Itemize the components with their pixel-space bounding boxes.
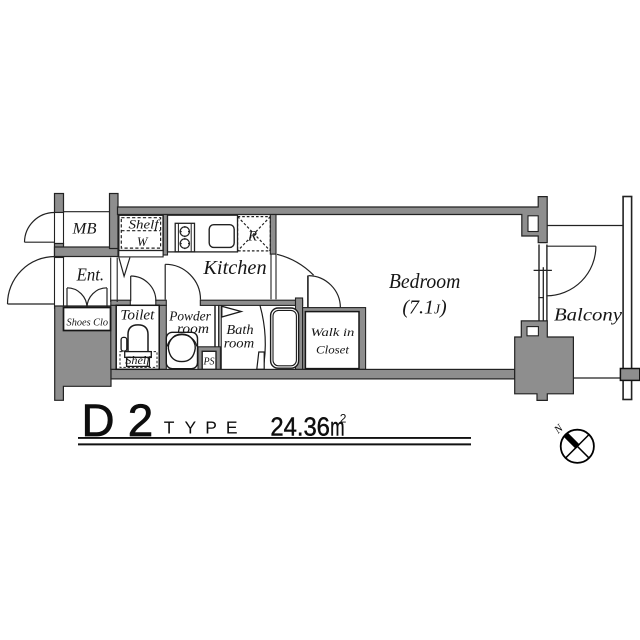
svg-text:R: R (247, 228, 257, 244)
svg-text:Kitchen: Kitchen (202, 257, 266, 279)
svg-text:room: room (224, 337, 254, 352)
svg-text:PS: PS (202, 356, 214, 367)
svg-text:(7.1J): (7.1J) (402, 297, 447, 319)
svg-text:Shoes Clo: Shoes Clo (67, 317, 109, 328)
svg-text:MB: MB (71, 221, 96, 238)
svg-text:Shelf: Shelf (129, 217, 161, 231)
svg-text:TYPE: TYPE (164, 417, 238, 437)
svg-text:Walk in: Walk in (311, 327, 355, 339)
svg-text:W: W (137, 235, 149, 249)
svg-text:N: N (551, 422, 566, 437)
svg-text:Shelf: Shelf (125, 353, 151, 367)
svg-text:Closet: Closet (316, 345, 350, 357)
svg-text:Ent.: Ent. (76, 264, 104, 284)
svg-text:Bedroom: Bedroom (389, 269, 461, 293)
svg-text:Balcony: Balcony (554, 305, 622, 325)
svg-text:2: 2 (340, 411, 347, 425)
svg-text:Toilet: Toilet (120, 308, 155, 324)
